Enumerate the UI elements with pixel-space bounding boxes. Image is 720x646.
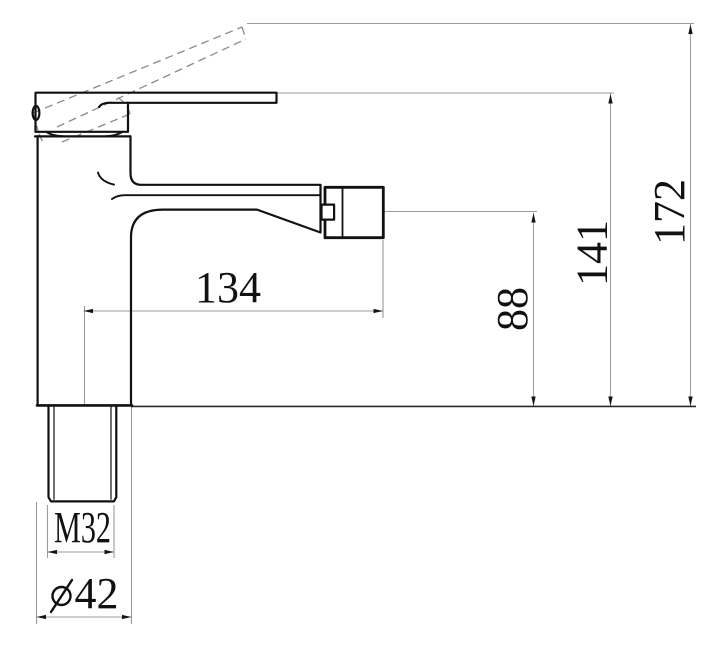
aerator-connector (322, 205, 335, 220)
dimension-88-label: 88 (488, 287, 537, 331)
dimension-lines (37, 24, 691, 617)
handle-lever (33, 93, 277, 132)
dimension-labels: 134 88 141 172 M32 42 (51, 179, 694, 618)
handle-raised-position-dashed (33, 27, 246, 145)
technical-drawing-svg: 134 88 141 172 M32 42 (0, 0, 720, 646)
extension-lines (37, 24, 695, 625)
dimension-134-label: 134 (195, 263, 261, 312)
threaded-shank (49, 407, 117, 502)
aerator-block (322, 187, 384, 237)
dimension-dia42-value: 42 (75, 569, 119, 618)
faucet-dimension-drawing: 134 88 141 172 M32 42 (0, 0, 720, 646)
diameter-symbol-icon (51, 580, 72, 612)
dimension-dia42: 42 (51, 569, 119, 618)
dimension-arrows (37, 25, 693, 620)
dimension-172-label: 172 (645, 179, 694, 245)
faucet-body (35, 132, 321, 406)
spout-inner-line (112, 195, 321, 199)
spout-fillet-curve (98, 173, 114, 185)
dimension-141-label: 141 (568, 220, 617, 286)
dimension-m32-label: M32 (54, 503, 111, 552)
